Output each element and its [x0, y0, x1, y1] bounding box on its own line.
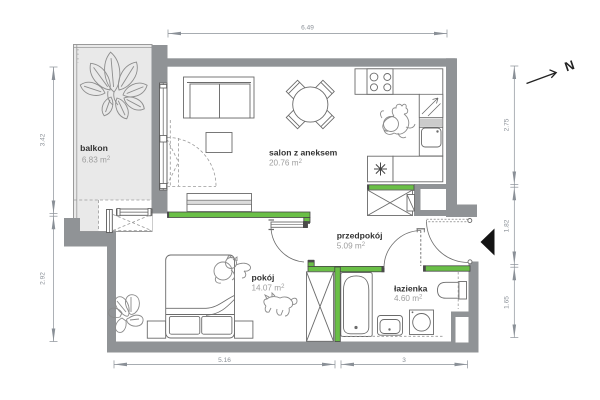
svg-text:3.42: 3.42 [40, 133, 47, 146]
svg-text:1.65: 1.65 [504, 296, 511, 309]
svg-text:balkon: balkon [80, 143, 108, 153]
svg-text:5.16: 5.16 [218, 357, 231, 364]
svg-text:2.92: 2.92 [40, 272, 47, 285]
svg-text:salon z aneksem: salon z aneksem [269, 148, 338, 158]
svg-text:4.60 m2: 4.60 m2 [394, 294, 423, 303]
svg-text:1.82: 1.82 [504, 219, 511, 232]
svg-text:5.09 m2: 5.09 m2 [337, 242, 366, 251]
svg-text:pokój: pokój [252, 273, 275, 283]
svg-text:14.07 m2: 14.07 m2 [252, 284, 286, 293]
svg-text:6.83 m2: 6.83 m2 [82, 156, 111, 165]
svg-text:3: 3 [402, 357, 406, 364]
svg-text:20.76 m2: 20.76 m2 [269, 159, 303, 168]
svg-text:przedpokój: przedpokój [337, 231, 383, 241]
svg-text:łazienka: łazienka [394, 284, 428, 294]
svg-text:6.49: 6.49 [301, 25, 314, 32]
svg-text:2.75: 2.75 [504, 118, 511, 131]
